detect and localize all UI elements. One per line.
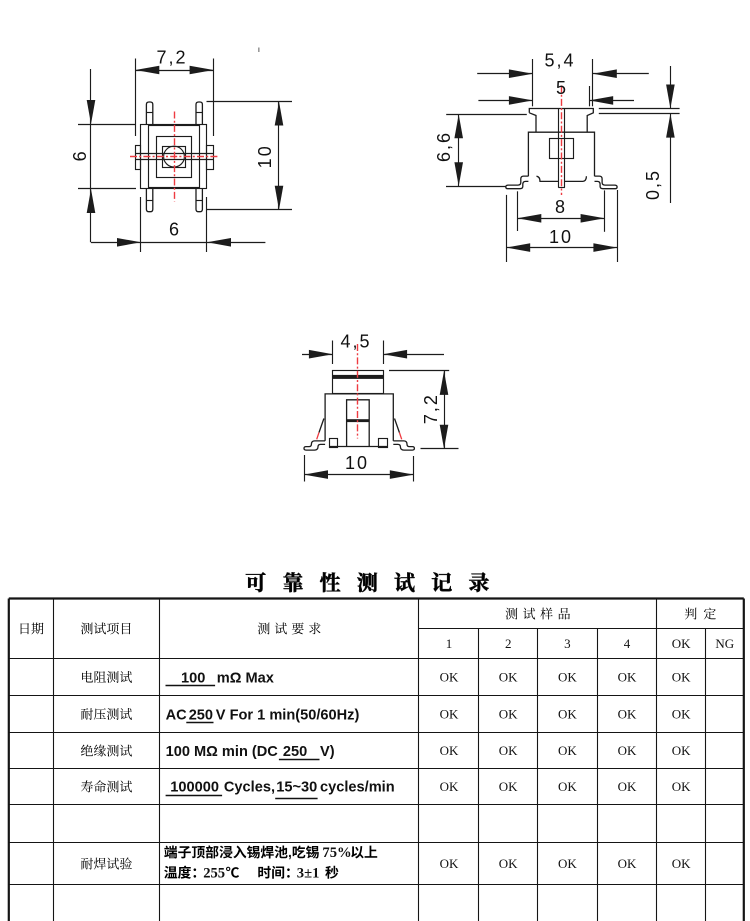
svg-text:OK: OK [618, 779, 637, 794]
svg-text:250: 250 [189, 707, 213, 723]
svg-text:5: 5 [556, 78, 566, 98]
svg-text:OK: OK [672, 779, 691, 794]
svg-text:0,5: 0,5 [643, 169, 663, 200]
svg-text:5,4: 5,4 [544, 51, 575, 71]
svg-text:OK: OK [672, 707, 691, 722]
svg-text:OK: OK [440, 743, 459, 758]
svg-text:cycles/min: cycles/min [320, 780, 395, 796]
svg-text:6: 6 [70, 151, 90, 161]
svg-text:1: 1 [446, 636, 453, 651]
svg-text:100: 100 [181, 670, 205, 686]
svg-text:100 MΩ min (DC: 100 MΩ min (DC [166, 744, 279, 760]
svg-text:7,2: 7,2 [156, 48, 187, 68]
svg-text:4: 4 [624, 636, 631, 651]
svg-text:255: 255 [203, 866, 225, 882]
svg-text:8: 8 [555, 197, 565, 217]
svg-text:Cycles,: Cycles, [224, 780, 275, 796]
svg-text:OK: OK [618, 743, 637, 758]
svg-text:75%: 75% [322, 845, 351, 861]
svg-text:OK: OK [558, 743, 577, 758]
svg-text:OK: OK [499, 743, 518, 758]
svg-text:15~30: 15~30 [276, 780, 317, 796]
svg-text:OK: OK [440, 707, 459, 722]
svg-text:OK: OK [672, 856, 691, 871]
svg-text:3±1: 3±1 [297, 866, 320, 882]
svg-text:OK: OK [558, 670, 577, 685]
svg-text:OK: OK [618, 707, 637, 722]
svg-text:OK: OK [672, 636, 691, 651]
svg-text:NG: NG [715, 636, 734, 651]
svg-text:V For 1 min(50/60Hz): V For 1 min(50/60Hz) [216, 707, 360, 723]
svg-text:OK: OK [558, 707, 577, 722]
svg-text:6,6: 6,6 [434, 131, 454, 162]
svg-text:OK: OK [440, 856, 459, 871]
svg-text:10: 10 [549, 227, 573, 247]
svg-text:100000: 100000 [170, 780, 219, 796]
svg-text:OK: OK [440, 779, 459, 794]
svg-text:2: 2 [505, 636, 512, 651]
svg-text:OK: OK [499, 779, 518, 794]
svg-text:OK: OK [499, 670, 518, 685]
svg-text:4,5: 4,5 [340, 332, 371, 352]
svg-text:mΩ Max: mΩ Max [217, 670, 275, 686]
svg-text:10: 10 [255, 144, 275, 168]
svg-text:OK: OK [499, 856, 518, 871]
svg-text:OK: OK [499, 707, 518, 722]
svg-text:OK: OK [558, 779, 577, 794]
svg-text:AC: AC [166, 707, 188, 723]
svg-text:6: 6 [169, 220, 179, 240]
svg-text:250: 250 [283, 744, 307, 760]
svg-text:OK: OK [618, 856, 637, 871]
svg-text:3: 3 [564, 636, 571, 651]
svg-text:,: , [288, 845, 292, 860]
svg-text:OK: OK [558, 856, 577, 871]
svg-text:V): V) [320, 744, 335, 760]
svg-text:7,2: 7,2 [421, 393, 441, 424]
svg-text:10: 10 [345, 453, 369, 473]
svg-text:OK: OK [440, 670, 459, 685]
svg-text:OK: OK [672, 670, 691, 685]
svg-text:OK: OK [618, 670, 637, 685]
svg-text:OK: OK [672, 743, 691, 758]
